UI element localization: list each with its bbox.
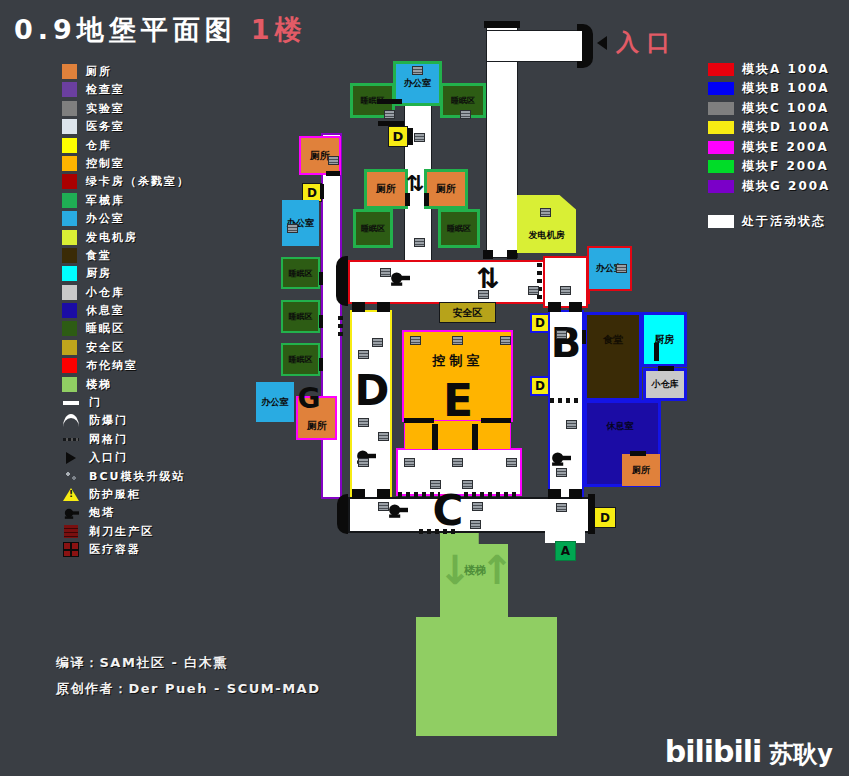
room-sleep-center-right-label: 睡眠区 <box>441 212 477 245</box>
vent-locker-icon <box>528 286 539 295</box>
vent-locker-icon <box>328 156 339 165</box>
credits-translator: 编译：SAM社区 - 白木熏 <box>56 650 320 676</box>
box-d-b-top-label: D <box>532 315 548 331</box>
entrance-arrow-icon <box>597 36 607 50</box>
room-kitchen-label: 厨房 <box>644 315 684 364</box>
vent-locker-icon <box>556 468 567 477</box>
room-office-left-top-label: 办公室 <box>282 200 319 246</box>
room-generator-label: 发电机房 <box>517 227 576 243</box>
room-sleep-left-1: 睡眠区 <box>281 257 320 289</box>
vent-locker-icon <box>500 336 511 345</box>
room-sleep-left-2-label: 睡眠区 <box>283 302 318 331</box>
room-canteen-label-label: 食堂 <box>588 332 638 348</box>
turret-corridor-a <box>390 270 410 290</box>
door-bar <box>319 358 323 371</box>
box-d-c-right: D <box>594 507 616 528</box>
door-bar <box>408 128 413 145</box>
letter-g-label: G <box>294 381 324 415</box>
door-bar <box>432 424 438 450</box>
door-bar <box>424 193 429 206</box>
letter-d-label: D <box>352 366 392 414</box>
door-bar <box>658 366 674 371</box>
room-toilet-center-right: 厕所 <box>424 169 468 209</box>
door-bar <box>569 302 582 312</box>
vent-locker-icon <box>430 480 441 489</box>
vent-locker-icon <box>452 336 463 345</box>
door-bar <box>377 489 390 499</box>
door-bar <box>320 184 324 199</box>
vent-locker-icon <box>378 432 389 441</box>
grid-door-dotted <box>550 398 582 403</box>
door-bar <box>378 121 404 126</box>
entrance-endcap-inner <box>573 31 582 61</box>
room-sleep-center-left: 睡眠区 <box>353 209 393 248</box>
stairs-label-label: 楼梯 <box>455 563 495 577</box>
stairs-label: 楼梯 <box>455 563 495 577</box>
room-generator <box>517 195 576 253</box>
vent-locker-icon <box>380 268 391 277</box>
door-bar <box>548 302 561 312</box>
vent-locker-icon <box>358 418 369 427</box>
box-d-top-label: D <box>389 127 407 146</box>
vent-locker-icon <box>616 264 627 273</box>
box-safe-zone-label: 安全区 <box>440 303 495 322</box>
letter-b: B <box>548 320 584 366</box>
room-kitchen: 厨房 <box>641 312 687 367</box>
vent-locker-icon <box>556 330 567 339</box>
vent-locker-icon <box>540 208 551 217</box>
door-bar <box>569 489 582 499</box>
vent-locker-icon <box>414 238 425 247</box>
vent-locker-icon <box>506 458 517 467</box>
room-control-label: 控制室 <box>421 352 495 370</box>
box-d-b-top: D <box>530 313 550 333</box>
vent-locker-icon <box>462 480 473 489</box>
vent-locker-icon <box>358 458 369 467</box>
vent-locker-icon <box>414 133 425 142</box>
door-bar <box>405 193 410 206</box>
vent-locker-icon <box>384 110 395 119</box>
room-restroom-label-label: 休息室 <box>590 418 650 434</box>
room-sleep-center-left-label: 睡眠区 <box>356 212 390 245</box>
door-bar <box>481 418 511 423</box>
box-module-a-label: A <box>556 542 575 560</box>
door-bar <box>507 250 517 259</box>
room-canteen-label: 食堂 <box>588 332 638 348</box>
corridor-a-left-cap <box>336 256 348 306</box>
door-bar <box>472 424 478 450</box>
box-d-b-bottom: D <box>530 376 550 396</box>
door-bar <box>377 302 390 312</box>
vent-locker-icon <box>566 420 577 429</box>
credits-author: 原创作者：Der Pueh - SCUM-MAD <box>56 676 320 702</box>
room-sleep-left-1-label: 睡眠区 <box>283 259 318 287</box>
room-toilet-center-right-label: 厕所 <box>427 172 465 206</box>
corridor-entrance-horizontal <box>486 30 582 62</box>
box-module-a: A <box>555 541 576 561</box>
vent-locker-icon <box>452 458 463 467</box>
turret-corridor-c <box>388 502 408 522</box>
corridor-a-right <box>543 256 588 308</box>
vent-locker-icon <box>556 503 567 512</box>
letter-g: G <box>294 381 324 415</box>
room-restroom-label: 休息室 <box>590 418 650 434</box>
vent-locker-icon <box>358 350 369 359</box>
letter-b-label: B <box>548 320 584 366</box>
room-toilet-g-label: 厕所 <box>298 416 336 436</box>
room-toilet-center-left-label: 厕所 <box>367 172 405 206</box>
door-bar <box>352 489 365 499</box>
room-small-warehouse: 小仓库 <box>643 368 687 401</box>
box-d-b-bottom-label: D <box>532 378 548 394</box>
vent-locker-icon <box>478 290 489 299</box>
grid-door-dotted <box>398 492 440 497</box>
grid-door-dotted <box>338 316 343 340</box>
door-bar <box>319 272 323 285</box>
turret-corridor-b <box>551 450 571 470</box>
room-sleep-left-3: 睡眠区 <box>281 343 320 376</box>
vent-locker-icon <box>560 286 571 295</box>
bilibili-logo: bilibili <box>665 734 762 769</box>
vent-locker-icon <box>287 224 298 233</box>
door-bar <box>404 418 434 423</box>
entrance-marker: 入口 <box>597 27 678 58</box>
watermark-username: 苏耿y <box>769 738 833 770</box>
vent-locker-icon <box>372 338 383 347</box>
door-bar <box>483 250 493 259</box>
room-office-left-top: 办公室 <box>282 200 319 246</box>
letter-e: E <box>438 374 478 426</box>
stairs-lower <box>416 617 557 736</box>
door-bar <box>352 302 365 312</box>
watermark: bilibili 苏耿y <box>665 734 833 770</box>
vent-locker-icon <box>404 458 415 467</box>
letter-d: D <box>352 366 392 414</box>
room-toilet-right-label: 厕所 <box>622 454 660 486</box>
entrance-label: 入口 <box>616 27 678 58</box>
grid-door-dotted <box>537 263 542 303</box>
corridor-c-left-cap <box>337 494 348 534</box>
corridor-c-right-cap <box>588 494 595 534</box>
box-safe-zone: 安全区 <box>439 302 496 323</box>
room-sleep-left-3-label: 睡眠区 <box>283 345 318 374</box>
room-office-left-bottom: 办公室 <box>256 382 294 422</box>
room-control-label-label: 控制室 <box>421 352 495 370</box>
box-d-c-right-label: D <box>595 508 615 527</box>
room-toilet-g-label-label: 厕所 <box>298 416 336 436</box>
letter-e-label: E <box>438 374 478 426</box>
door-bar <box>654 343 659 361</box>
credits: 编译：SAM社区 - 白木熏 原创作者：Der Pueh - SCUM-MAD <box>56 650 320 702</box>
door-bar <box>377 99 402 104</box>
door-bar <box>326 171 340 176</box>
vent-locker-icon <box>412 66 423 75</box>
box-d-left-label: D <box>303 184 321 201</box>
room-sleep-center-right: 睡眠区 <box>438 209 480 248</box>
room-canteen <box>584 312 642 401</box>
door-bar <box>582 330 586 344</box>
room-office-left-bottom-label: 办公室 <box>256 382 294 422</box>
door-bar <box>319 315 323 328</box>
vent-locker-icon <box>378 502 389 511</box>
box-d-top: D <box>388 126 408 147</box>
room-sleep-left-2: 睡眠区 <box>281 300 320 333</box>
vent-locker-icon <box>472 502 483 511</box>
door-bar <box>548 489 561 499</box>
room-toilet-right: 厕所 <box>622 454 660 486</box>
vent-locker-icon <box>460 110 471 119</box>
bunker-map-page: 0.9地堡平面图1楼 厕所检查室实验室医务室仓库控制室绿卡房（杀戮室）军械库办公… <box>0 0 849 776</box>
grid-door-dotted <box>419 529 457 534</box>
vent-locker-icon <box>410 336 421 345</box>
room-small-warehouse-label: 小仓库 <box>646 371 684 398</box>
vent-locker-icon <box>470 520 481 529</box>
entrance-top-cap <box>484 21 520 28</box>
door-bar <box>630 451 646 456</box>
room-generator-label-label: 发电机房 <box>517 227 576 243</box>
grid-door-dotted <box>464 492 520 497</box>
